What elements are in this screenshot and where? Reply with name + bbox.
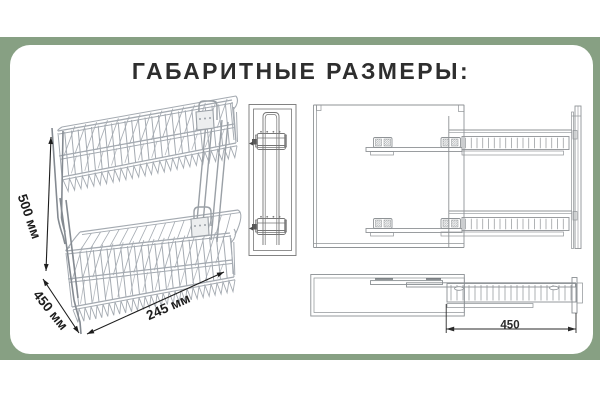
svg-text:450: 450 [500,320,519,332]
svg-text:450 мм: 450 мм [30,287,71,332]
svg-text:500 мм: 500 мм [15,192,44,241]
